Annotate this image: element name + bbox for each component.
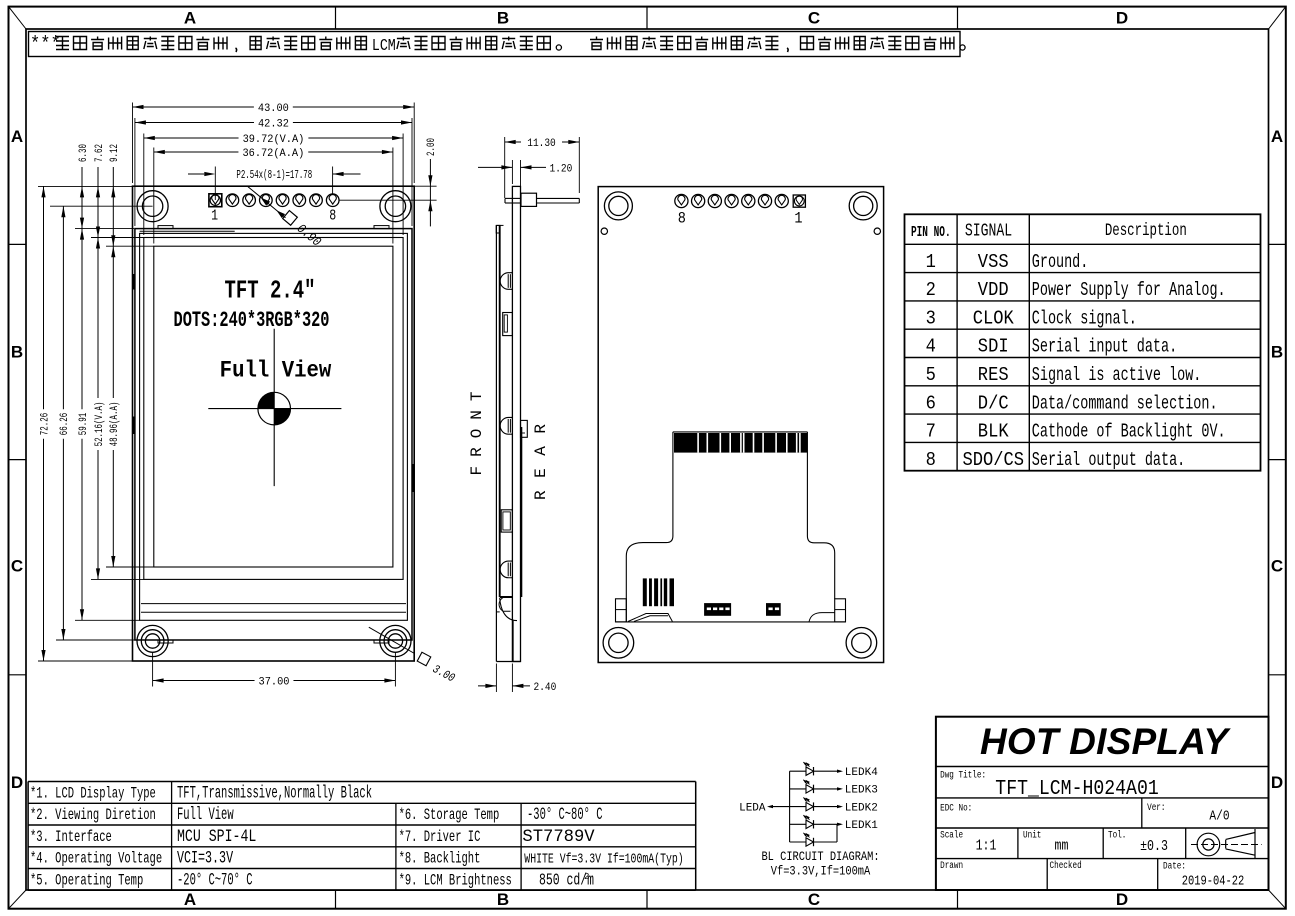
svg-text:*2. Viewing Diretion: *2. Viewing Diretion <box>30 807 156 825</box>
svg-text:8: 8 <box>678 211 686 228</box>
svg-text:4: 4 <box>926 337 936 358</box>
svg-text:D: D <box>1116 9 1128 28</box>
svg-text:66.26: 66.26 <box>58 413 71 436</box>
svg-text:-30° C~80° C: -30° C~80° C <box>527 806 602 825</box>
svg-text:48.96(A.A): 48.96(A.A) <box>108 402 121 447</box>
svg-text:D: D <box>11 773 23 792</box>
svg-text:VDD: VDD <box>978 280 1009 301</box>
svg-text:11.30: 11.30 <box>527 137 556 150</box>
svg-text:2.40: 2.40 <box>534 681 557 694</box>
svg-text:9.12: 9.12 <box>108 144 121 162</box>
svg-text:C: C <box>808 890 820 909</box>
svg-text:*6. Storage Temp: *6. Storage Temp <box>399 807 500 825</box>
svg-text:39.72(V.A): 39.72(V.A) <box>243 134 305 146</box>
svg-text:A: A <box>1271 127 1283 146</box>
svg-text:EDC No:: EDC No: <box>940 801 972 814</box>
svg-text:*9. LCM Brightness: *9. LCM Brightness <box>399 872 512 890</box>
svg-text:VSS: VSS <box>978 252 1009 273</box>
svg-text:TFT 2.4": TFT 2.4" <box>224 276 315 306</box>
svg-text:TFT_LCM-H024A01: TFT_LCM-H024A01 <box>995 777 1158 801</box>
svg-text:C: C <box>808 9 820 28</box>
svg-text:Unit: Unit <box>1023 828 1041 841</box>
svg-text:SDI: SDI <box>978 337 1009 358</box>
svg-text:VCI=3.3V: VCI=3.3V <box>177 850 233 869</box>
svg-text:D: D <box>1271 773 1283 792</box>
svg-text:Serial output data.: Serial output data. <box>1032 450 1185 472</box>
svg-text:Tol.: Tol. <box>1108 828 1126 841</box>
svg-text:*5. Operating Temp: *5. Operating Temp <box>30 872 143 890</box>
svg-text:8: 8 <box>926 450 936 471</box>
svg-text:42.32: 42.32 <box>258 118 289 130</box>
svg-text:SIGNAL: SIGNAL <box>965 221 1012 242</box>
svg-text:LEDA: LEDA <box>739 803 766 815</box>
svg-text:WHITE Vf=3.3V If=100mA(Typ): WHITE Vf=3.3V If=100mA(Typ) <box>524 851 683 867</box>
svg-text:Clock signal.: Clock signal. <box>1032 308 1137 330</box>
svg-text:B: B <box>497 9 509 28</box>
svg-text:FRONT: FRONT <box>468 392 486 476</box>
svg-text:Ver:: Ver: <box>1147 801 1165 814</box>
svg-text:mm: mm <box>1055 837 1069 854</box>
svg-text:2: 2 <box>584 872 589 882</box>
svg-text:A/0: A/0 <box>1209 807 1229 824</box>
svg-text:TFT,Transmissive,Normally Blac: TFT,Transmissive,Normally Black <box>177 784 372 803</box>
svg-text:2: 2 <box>926 280 936 301</box>
svg-text:37.00: 37.00 <box>259 676 290 688</box>
svg-text:B: B <box>1271 343 1283 362</box>
svg-text:*1. LCD Display Type: *1. LCD Display Type <box>30 785 156 803</box>
svg-text:D: D <box>1116 890 1128 909</box>
svg-text:Full View: Full View <box>220 357 332 384</box>
svg-text:BLK: BLK <box>978 422 1009 443</box>
svg-text:36.72(A.A): 36.72(A.A) <box>242 148 304 160</box>
svg-text:1: 1 <box>926 252 936 273</box>
svg-text:±0.3: ±0.3 <box>1140 838 1168 855</box>
svg-text:SDO/CS: SDO/CS <box>962 450 1024 471</box>
svg-text:-20° C~70° C: -20° C~70° C <box>177 871 252 890</box>
svg-text:Scale: Scale <box>940 828 963 841</box>
svg-text:72.26: 72.26 <box>38 413 51 436</box>
svg-text:1: 1 <box>211 207 218 224</box>
svg-text:1: 1 <box>794 211 802 228</box>
svg-text:0.90: 0.90 <box>294 221 324 250</box>
svg-text:7.62: 7.62 <box>92 144 105 162</box>
svg-text:LEDK2: LEDK2 <box>845 802 878 814</box>
svg-text:DOTS:240*3RGB*320: DOTS:240*3RGB*320 <box>174 307 330 333</box>
svg-text:ST7789V: ST7789V <box>522 828 595 847</box>
svg-text:PIN NO.: PIN NO. <box>911 224 951 241</box>
svg-text:3.00: 3.00 <box>430 663 457 686</box>
svg-text:Drawn: Drawn <box>940 859 963 872</box>
svg-text:Vf=3.3V,If=100mA: Vf=3.3V,If=100mA <box>771 865 871 879</box>
svg-text:1.20: 1.20 <box>550 163 573 176</box>
svg-text:6: 6 <box>926 394 936 415</box>
svg-text:Ground.: Ground. <box>1032 252 1089 274</box>
svg-text:***: *** <box>30 34 61 55</box>
svg-text:Data/command selection.: Data/command selection. <box>1032 393 1218 415</box>
svg-text:6.30: 6.30 <box>76 144 89 162</box>
svg-text:LEDK4: LEDK4 <box>845 767 878 779</box>
svg-text:BL CIRCUIT DIAGRAM:: BL CIRCUIT DIAGRAM: <box>761 850 879 864</box>
svg-text:Dwg Title:: Dwg Title: <box>940 768 986 781</box>
svg-text:LEDK3: LEDK3 <box>845 785 878 797</box>
svg-text:LCM: LCM <box>372 36 396 56</box>
svg-text:B: B <box>11 343 23 362</box>
svg-text:Signal is active low.: Signal is active low. <box>1032 365 1202 387</box>
svg-text:52.16(V.A): 52.16(V.A) <box>92 402 105 447</box>
svg-text:RES: RES <box>978 365 1009 386</box>
svg-text:Date:: Date: <box>1163 859 1186 872</box>
svg-text:*4. Operating Voltage: *4. Operating Voltage <box>30 851 162 869</box>
svg-text:Power Supply for Analog.: Power Supply for Analog. <box>1032 280 1226 302</box>
svg-text:Checked: Checked <box>1050 859 1082 872</box>
svg-text:A: A <box>11 127 23 146</box>
svg-text:*7. Driver IC: *7. Driver IC <box>399 829 481 847</box>
svg-text:Cathode of Backlight 0V.: Cathode of Backlight 0V. <box>1032 421 1226 443</box>
svg-text:8: 8 <box>329 207 336 224</box>
svg-text:P2.54x(8-1)=17.78: P2.54x(8-1)=17.78 <box>236 168 312 181</box>
svg-text:59.91: 59.91 <box>76 413 89 436</box>
svg-text:Serial input data.: Serial input data. <box>1032 337 1177 359</box>
svg-text:Full View: Full View <box>177 806 234 825</box>
svg-text:B: B <box>497 890 509 909</box>
svg-text:D/C: D/C <box>978 394 1009 415</box>
svg-text:C: C <box>11 557 23 576</box>
svg-text:43.00: 43.00 <box>258 103 289 115</box>
svg-text:2.00: 2.00 <box>425 138 438 156</box>
svg-text:3: 3 <box>926 309 936 330</box>
svg-text:Description: Description <box>1105 220 1187 241</box>
svg-text:HOT DISPLAY: HOT DISPLAY <box>980 721 1231 762</box>
svg-text:REAR: REAR <box>532 424 550 500</box>
svg-text:A: A <box>184 9 196 28</box>
svg-text:7: 7 <box>926 422 936 443</box>
svg-text:CLOK: CLOK <box>973 309 1014 330</box>
svg-text:MCU SPI-4L: MCU SPI-4L <box>177 826 256 846</box>
svg-text:*8. Backlight: *8. Backlight <box>399 851 481 869</box>
svg-text:C: C <box>1271 557 1283 576</box>
svg-text:1:1: 1:1 <box>976 837 997 854</box>
svg-text:2019-04-22: 2019-04-22 <box>1182 873 1245 889</box>
svg-text:A: A <box>184 890 196 909</box>
svg-text:5: 5 <box>926 365 936 386</box>
svg-text:*3. Interface: *3. Interface <box>30 829 112 847</box>
svg-text:LEDK1: LEDK1 <box>845 820 878 832</box>
